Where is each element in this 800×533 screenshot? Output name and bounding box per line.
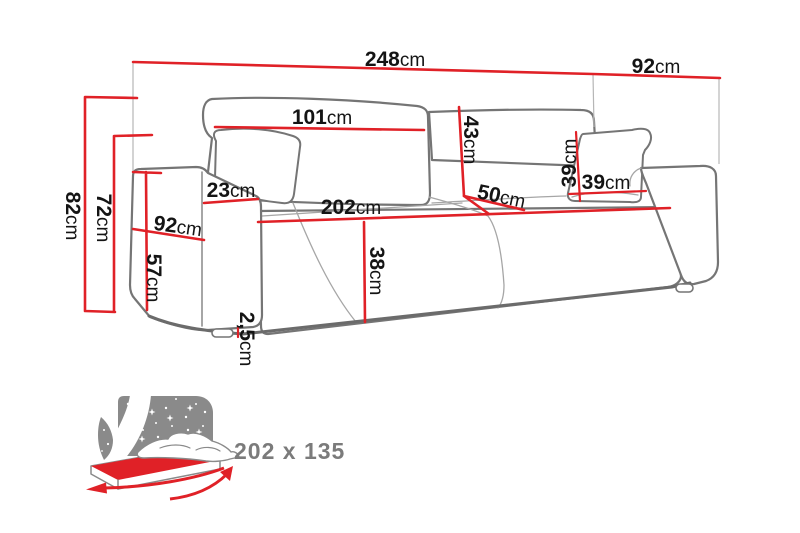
seat-base (259, 207, 681, 334)
dim-armrest-width-label: 23cm (207, 179, 256, 202)
dim-seat-width-label: 202cm (321, 196, 381, 219)
dim-depth-total-label: 92cm (632, 55, 681, 78)
sleeping-function-icon: 202 x 135 (86, 395, 345, 499)
sofa-dimension-diagram: 248cm 92cm 101cm 43cm 23cm 92cm 82cm 72c… (0, 0, 800, 533)
dim-height-total-label: 82cm (61, 192, 84, 241)
left-foot (212, 329, 233, 337)
right-foot (676, 284, 693, 292)
arrow-left-head (86, 483, 107, 494)
dim-width-total-label: 248cm (365, 48, 425, 71)
dim-seat-floor-height-label: 57cm (142, 254, 165, 303)
dim-front-height-label: 38cm (365, 247, 388, 296)
dim-back-cushion-width-label: 101cm (292, 106, 352, 129)
diagram-canvas: 248cm 92cm 101cm 43cm 23cm 92cm 82cm 72c… (0, 0, 800, 533)
sleeping-size-label: 202 x 135 (234, 438, 345, 464)
dim-backrest-height-label: 43cm (459, 116, 482, 165)
dim-back-height-label: 72cm (92, 194, 115, 243)
dim-pillow-width-label: 39cm (582, 171, 631, 194)
dim-base-gap-label: 2,5cm (235, 312, 258, 367)
dim-pillow-height-label: 39cm (558, 139, 581, 188)
dim-line-front-height (364, 222, 365, 322)
